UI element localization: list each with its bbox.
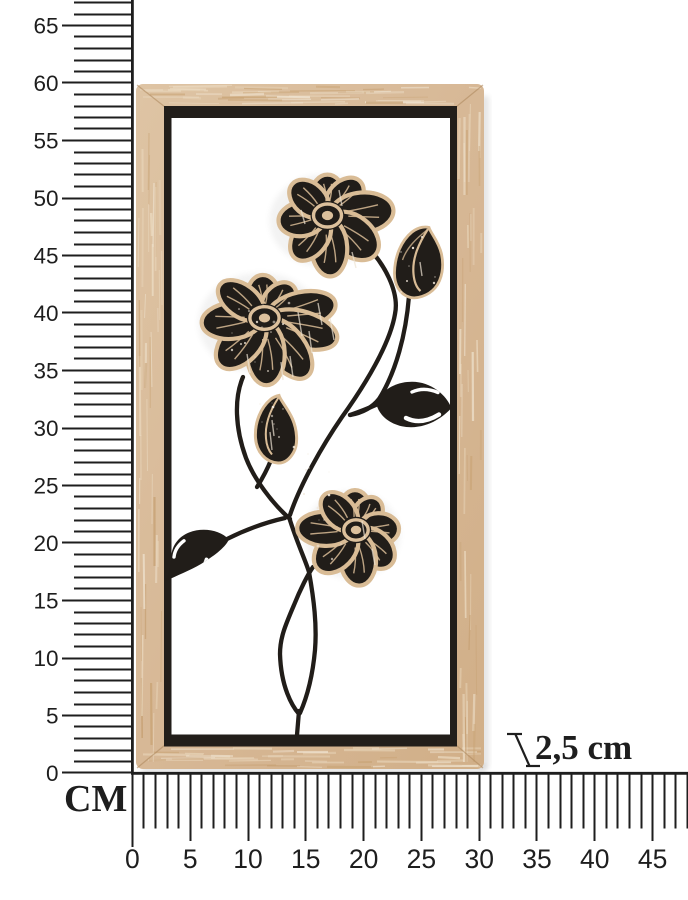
svg-text:40: 40 — [33, 301, 58, 326]
svg-text:0: 0 — [125, 844, 140, 874]
svg-text:60: 60 — [33, 71, 58, 96]
svg-text:45: 45 — [33, 244, 58, 269]
svg-text:65: 65 — [33, 14, 58, 39]
svg-text:30: 30 — [464, 844, 493, 874]
svg-text:40: 40 — [580, 844, 609, 874]
svg-text:35: 35 — [522, 844, 551, 874]
svg-text:50: 50 — [33, 186, 58, 211]
svg-text:10: 10 — [233, 844, 262, 874]
svg-text:5: 5 — [183, 844, 198, 874]
svg-text:30: 30 — [33, 416, 58, 441]
svg-text:5: 5 — [46, 704, 59, 729]
svg-text:20: 20 — [33, 531, 58, 556]
svg-text:15: 15 — [33, 589, 58, 614]
svg-text:2,5 cm: 2,5 cm — [535, 728, 632, 767]
svg-text:35: 35 — [33, 359, 58, 384]
svg-text:10: 10 — [33, 646, 58, 671]
svg-text:20: 20 — [349, 844, 378, 874]
svg-text:55: 55 — [33, 129, 58, 154]
svg-text:CM: CM — [64, 778, 127, 820]
svg-text:25: 25 — [33, 474, 58, 499]
svg-text:0: 0 — [46, 761, 59, 786]
svg-text:25: 25 — [407, 844, 436, 874]
svg-text:15: 15 — [291, 844, 320, 874]
svg-text:45: 45 — [638, 844, 667, 874]
